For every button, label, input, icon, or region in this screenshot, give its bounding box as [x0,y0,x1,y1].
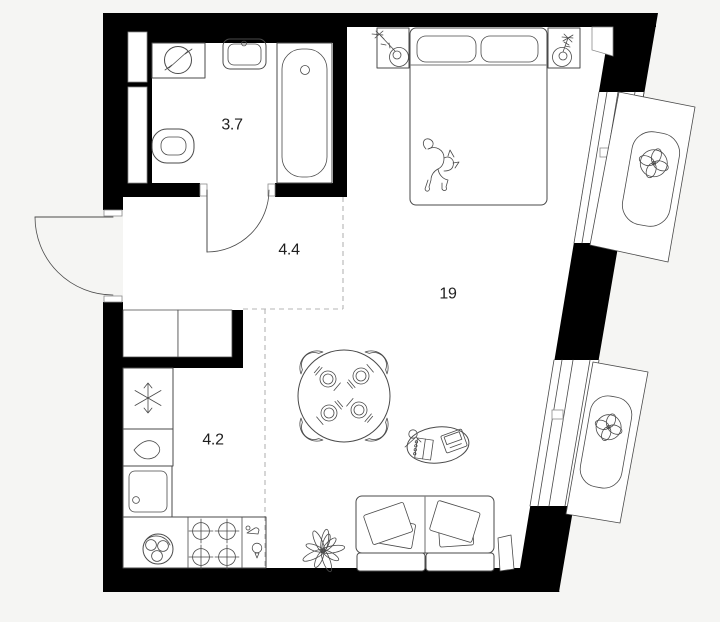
room-label-living-room: 19 [439,286,457,303]
shaft-niche [128,32,147,82]
floorplan-page: 3.7 4.4 19 4.2 [0,0,720,622]
shaft-niche [128,87,147,183]
room-label-kitchen: 4.2 [202,432,224,449]
side-table [498,535,514,571]
sofa-icon [356,496,514,571]
window-handle [552,410,563,419]
floorplan-svg: 3.7 4.4 19 4.2 [0,0,720,622]
room-label-bathroom: 3.7 [221,117,243,134]
wardrobe-icon [123,310,232,357]
room-label-hallway: 4.4 [278,242,300,259]
